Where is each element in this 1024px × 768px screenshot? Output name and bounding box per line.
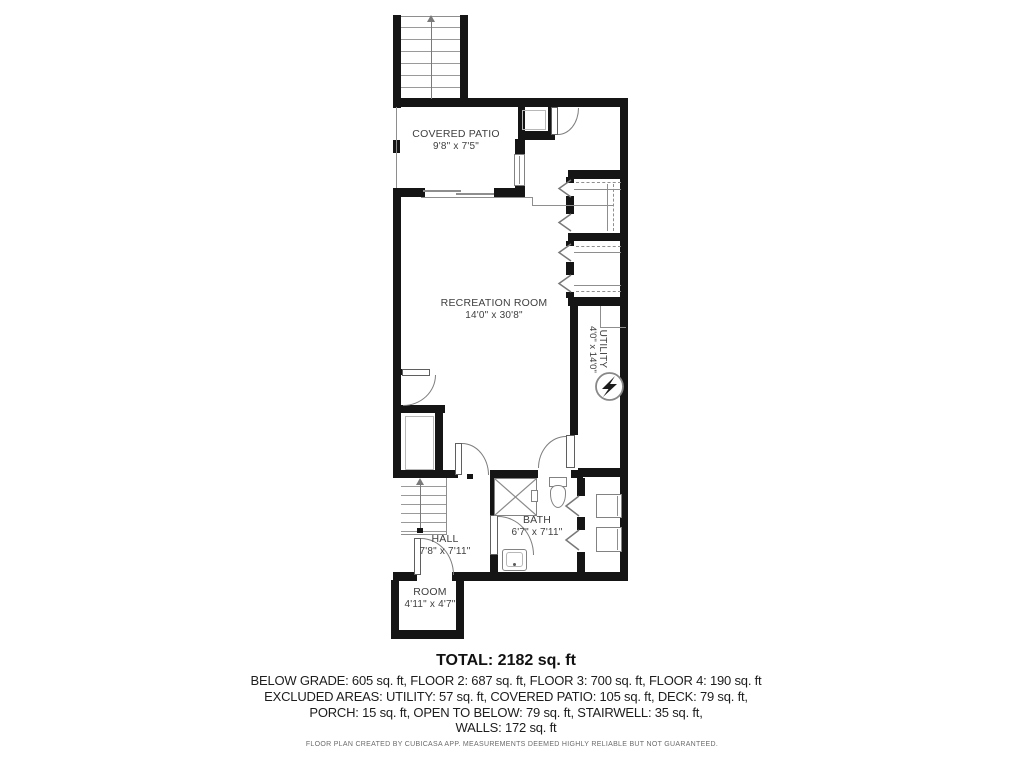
room-label-recreation: RECREATION ROOM 14'0" x 30'8" xyxy=(441,297,548,322)
disclaimer-text: FLOOR PLAN CREATED BY CUBICASA APP. MEAS… xyxy=(0,741,1024,748)
bath-north-door-leaf xyxy=(566,435,575,468)
stairs-up-arrow-icon xyxy=(427,15,435,22)
bifold-door-icon xyxy=(556,274,572,298)
entry-door-swing xyxy=(558,108,579,135)
bifold-door-icon xyxy=(556,243,572,267)
closet-shelf-dashed xyxy=(576,291,621,292)
closet-shelf-dashed xyxy=(576,182,621,183)
utility-left-wall xyxy=(570,306,578,435)
room-name: COVERED PATIO xyxy=(412,128,499,141)
wall xyxy=(494,188,525,197)
closet-mid-wall xyxy=(568,233,628,241)
room-name: BATH xyxy=(512,514,563,527)
hall-door-swing xyxy=(462,443,489,475)
wall xyxy=(490,470,538,478)
room-label-hall: HALL 7'8" x 7'11" xyxy=(420,533,471,558)
washer xyxy=(596,494,622,518)
closet-bottom-wall xyxy=(568,297,628,306)
bifold-door-icon xyxy=(563,529,580,556)
room-dims: 7'8" x 7'11" xyxy=(420,546,471,558)
stairs-up-arrow-icon xyxy=(416,478,424,485)
room-name: ROOM xyxy=(405,586,456,599)
stairs-direction-line xyxy=(420,484,421,530)
bath-north-door-swing xyxy=(538,436,566,468)
bifold-door-icon xyxy=(556,213,572,237)
room-dims: 14'0" x 30'8" xyxy=(441,310,548,322)
bath-wall xyxy=(577,478,585,496)
wall xyxy=(393,188,425,197)
washer-detail-line xyxy=(617,496,618,516)
room-dims: 4'11" x 4'7" xyxy=(405,599,456,611)
understair-closet-right xyxy=(435,405,443,478)
wall xyxy=(460,15,468,107)
dryer xyxy=(596,527,622,552)
area-summary: TOTAL: 2182 sq. ft BELOW GRADE: 605 sq. … xyxy=(0,652,1012,736)
room-label-bath: BATH 6'7" x 7'11" xyxy=(512,514,563,539)
wall xyxy=(571,470,583,478)
room-name: HALL xyxy=(420,533,471,546)
room-dims: 4'0" x 14'0" xyxy=(587,326,597,372)
bath-door-leaf xyxy=(490,515,498,555)
closet-top-wall xyxy=(568,170,628,179)
floor-edge-line xyxy=(532,205,614,206)
floor-edge-line xyxy=(421,197,533,198)
summary-line: BELOW GRADE: 605 sq. ft, FLOOR 2: 687 sq… xyxy=(0,673,1012,689)
total-area: TOTAL: 2182 sq. ft xyxy=(0,652,1012,670)
closet-shelf-line xyxy=(574,285,621,286)
wall xyxy=(393,15,401,108)
water-heater-icon xyxy=(594,371,625,407)
chase-inner-line xyxy=(522,110,546,130)
stairs-arrow-base xyxy=(428,99,434,104)
sink-drain-icon xyxy=(513,563,516,566)
stairs-direction-line xyxy=(431,21,432,103)
room-dims: 6'7" x 7'11" xyxy=(512,527,563,539)
closet-door-swing xyxy=(403,375,436,406)
room-bottom-wall xyxy=(391,630,464,639)
summary-line: PORCH: 15 sq. ft, OPEN TO BELOW: 79 sq. … xyxy=(0,705,1012,721)
slider-panel xyxy=(456,193,494,195)
closet-shelf-dashed xyxy=(613,184,614,231)
slider-panel xyxy=(423,190,461,192)
closet-shelf-line xyxy=(574,252,621,253)
dryer-detail-line xyxy=(617,529,618,550)
closet-shelf-dashed xyxy=(576,246,621,247)
hall-door-leaf xyxy=(455,443,462,475)
closet-rod-line xyxy=(607,184,608,231)
entry-door-leaf xyxy=(551,107,558,135)
bifold-door-icon xyxy=(556,179,572,203)
wall xyxy=(393,470,458,478)
room-dims: 9'8" x 7'5" xyxy=(412,141,499,153)
summary-line: WALLS: 172 sq. ft xyxy=(0,720,1012,736)
understair-shelf-line xyxy=(405,416,434,470)
stair-edge-line xyxy=(446,478,447,535)
room-label-utility: UTILITY 4'0" x 14'0" xyxy=(586,326,608,372)
room-label-covered-patio: COVERED PATIO 9'8" x 7'5" xyxy=(412,128,499,153)
utility-platform-line xyxy=(600,306,601,328)
bifold-door-icon xyxy=(563,495,580,522)
room-name: UTILITY xyxy=(597,326,608,372)
bottom-wall xyxy=(452,572,628,581)
window-pane-line xyxy=(519,156,520,184)
room-label-room: ROOM 4'11" x 4'7" xyxy=(405,586,456,611)
summary-line: EXCLUDED AREAS: UTILITY: 57 sq. ft, COVE… xyxy=(0,689,1012,705)
wall xyxy=(393,196,401,478)
patio-open-edge xyxy=(396,107,397,188)
utility-bottom-wall xyxy=(578,468,628,477)
floor-plan-page: COVERED PATIO 9'8" x 7'5" RECREATION ROO… xyxy=(0,0,1024,768)
shower-valve-icon xyxy=(531,490,538,502)
room-name: RECREATION ROOM xyxy=(441,297,548,310)
